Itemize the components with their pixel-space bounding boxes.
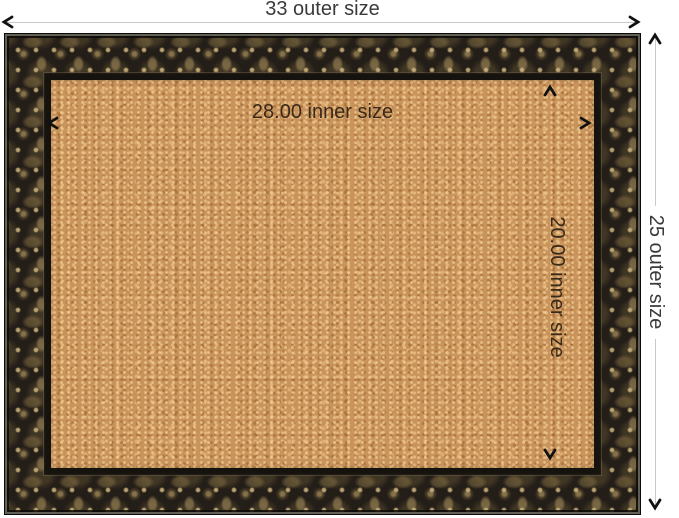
arrow-up-icon bbox=[542, 83, 558, 99]
arrow-down-icon bbox=[647, 496, 663, 512]
outer-width-dimension-line bbox=[4, 22, 640, 23]
arrow-up-icon bbox=[647, 31, 663, 47]
outer-width-label: 33 outer size bbox=[4, 0, 641, 21]
outer-height-label: 25 outer size bbox=[643, 206, 669, 339]
inner-width-label: 28.00 inner size bbox=[4, 100, 641, 124]
arrow-down-icon bbox=[542, 446, 558, 462]
inner-height-label: 20.00 inner size bbox=[545, 216, 569, 357]
cork-board bbox=[51, 80, 594, 468]
framed-corkboard-product-image: 33 outer size 25 outer size 28.00 inner … bbox=[0, 0, 679, 518]
